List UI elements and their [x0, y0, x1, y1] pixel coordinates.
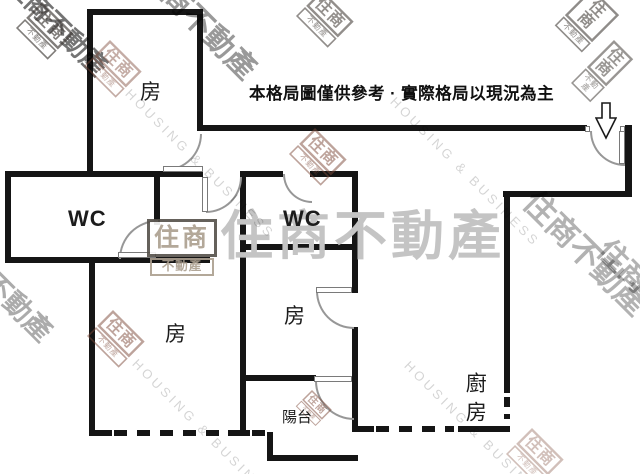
wall [89, 257, 95, 436]
wall [352, 426, 374, 432]
label-balcony: 陽台 [282, 406, 312, 427]
door-leaf [314, 376, 352, 382]
label-wc-center: WC [283, 206, 322, 232]
disclaimer-note: 本格局圖僅供參考 · 實際格局以現況為主 [249, 80, 554, 104]
watermark-stamp: 住商不動產 [296, 0, 354, 48]
wall [197, 125, 587, 131]
wall [228, 430, 250, 436]
wall [503, 191, 632, 197]
wall [240, 375, 316, 381]
wall [625, 125, 632, 197]
door-leaf [619, 131, 625, 164]
wall [267, 455, 358, 461]
door-arc [283, 174, 312, 203]
wall [5, 171, 11, 263]
window-dashed [376, 426, 454, 432]
window-dashed [504, 397, 510, 419]
label-room-main: 房 [165, 318, 186, 348]
brand-logo-secondary: 不動產 [150, 258, 214, 276]
wall [154, 171, 160, 225]
watermark-brand-en: HOUSING & BUSINESS [129, 356, 285, 474]
label-wc-left: WC [68, 206, 107, 232]
wall [240, 171, 283, 177]
entrance-arrow-icon [595, 102, 617, 140]
door-leaf [316, 287, 352, 293]
label-room-center: 房 [284, 300, 305, 330]
door-frame-notch [620, 126, 625, 132]
label-room-top-left: 房 [140, 76, 161, 106]
label-kitchen: 廚房 [462, 372, 487, 430]
brand-logo: 住商 不動產 [147, 219, 217, 276]
door-frame-notch [585, 126, 590, 132]
floor-plan: 住商不動產 HOUSING & BUSINESS HOUSING & BUSIN… [0, 0, 640, 474]
door-arc [316, 291, 354, 329]
wall [89, 430, 112, 436]
window-dashed [252, 430, 268, 436]
brand-logo-primary: 住商 [147, 219, 217, 257]
